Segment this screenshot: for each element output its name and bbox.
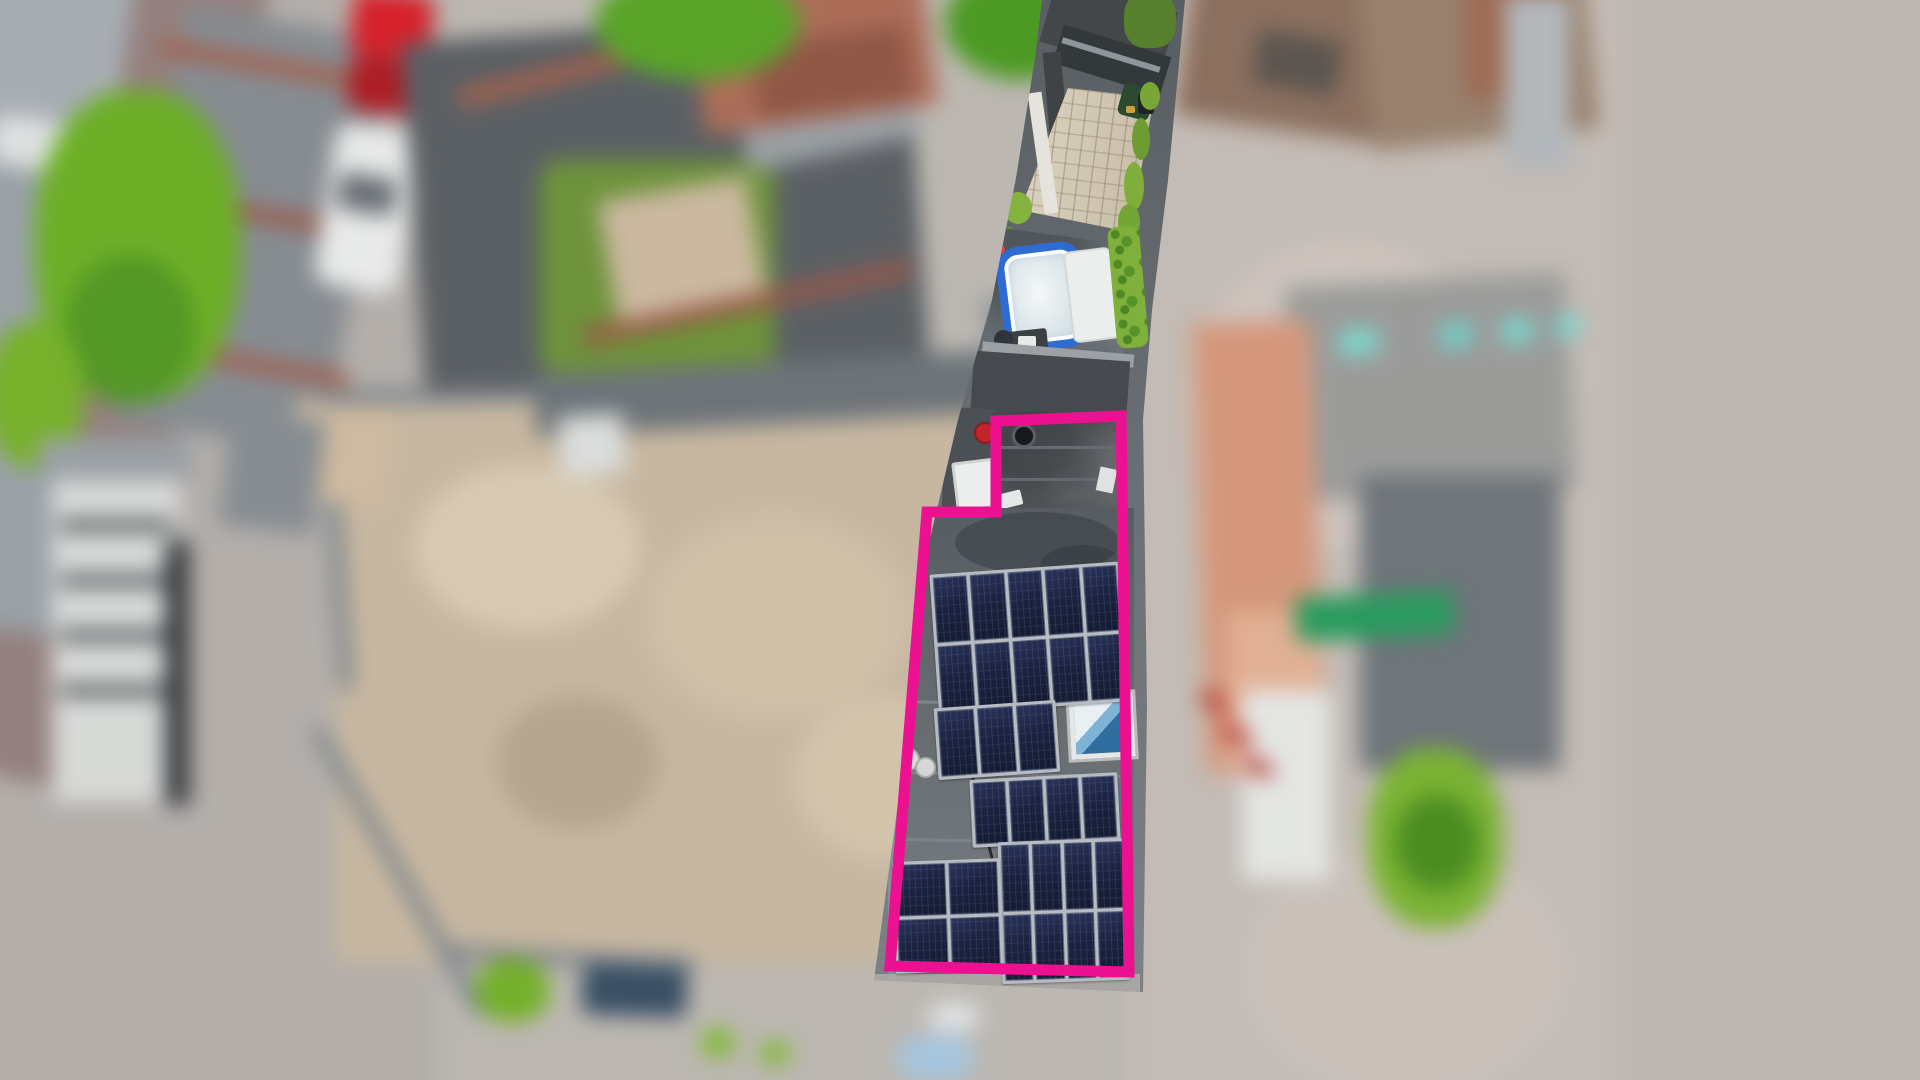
solar-panel <box>976 706 1017 774</box>
solar-panel <box>1032 843 1063 910</box>
solar-panel <box>937 644 976 712</box>
solar-panel <box>950 916 1001 969</box>
solar-panel <box>937 709 978 777</box>
wb-dark-edge <box>165 540 189 805</box>
solar-array-lower-left <box>892 858 1004 974</box>
blue-blob-bottom <box>898 1036 973 1080</box>
wb-window-band-1 <box>60 520 172 531</box>
aerial-photo <box>0 0 1920 1080</box>
terrace-plants-3 <box>1124 162 1144 210</box>
solar-panel <box>1045 777 1081 841</box>
solar-panel <box>1082 565 1121 633</box>
solar-array-mid-left <box>934 700 1061 780</box>
skylight-cyan-1 <box>1339 329 1378 355</box>
wb-window-band-4 <box>60 685 172 696</box>
solar-panel <box>970 573 1009 641</box>
solar-panel <box>1087 633 1126 701</box>
solar-panel <box>1094 841 1125 908</box>
tree-left-dark <box>65 255 195 405</box>
balcony-white <box>1242 690 1330 880</box>
vent-white-2 <box>915 757 936 778</box>
solar-panel <box>933 575 972 643</box>
sandy-dark-1 <box>495 695 660 830</box>
solar-panel <box>1063 842 1094 909</box>
white-blob-bottom <box>928 1002 980 1032</box>
solar-panel <box>1003 914 1034 981</box>
solar-array-upper-bank <box>929 562 1128 715</box>
building-right-roof <box>1285 273 1576 502</box>
solar-panel <box>1097 910 1128 977</box>
solar-panel <box>1007 570 1046 638</box>
shed-white <box>558 413 626 477</box>
strip-top-green <box>1124 0 1176 48</box>
solar-panel <box>1049 636 1088 704</box>
wb-window-band-2 <box>60 575 172 586</box>
solar-panel <box>948 861 999 914</box>
sandy-light-2 <box>645 515 910 720</box>
hatch-white <box>951 458 1001 513</box>
terrace-item-yellow <box>1126 106 1135 113</box>
notch-seam-1 <box>996 446 1120 449</box>
skylight-cyan-4 <box>1555 315 1580 336</box>
roof-gray-far-right <box>1505 0 1570 170</box>
solar-panel <box>975 641 1014 709</box>
solar-panel <box>895 863 946 916</box>
gray-block-left-of-lot <box>218 410 326 536</box>
solar-panel <box>1081 775 1117 839</box>
white-building-roofline <box>38 438 193 480</box>
solar-panel <box>1034 913 1065 980</box>
bush-bottom-center-1 <box>700 1028 736 1058</box>
solar-panel <box>1009 779 1045 843</box>
solar-panel <box>1001 844 1032 911</box>
sandy-light-1 <box>415 465 640 630</box>
solar-panel <box>972 781 1008 845</box>
wb-window-band-3 <box>60 630 172 641</box>
skylight-cyan-3 <box>1501 319 1532 343</box>
bush-bottom-left <box>475 958 550 1023</box>
tree-bottom-right-dark <box>1395 795 1480 890</box>
vent-black <box>1012 424 1036 448</box>
solar-panel <box>897 918 948 971</box>
terrace-plants-2 <box>1132 118 1150 160</box>
solar-panel <box>1044 567 1083 635</box>
solar-array-lower-right <box>998 838 1131 984</box>
skylight-cyan-2 <box>1439 323 1472 347</box>
solar-panel <box>1016 703 1057 771</box>
terrace-plants-1 <box>1140 82 1160 110</box>
solar-panel <box>1066 911 1097 978</box>
solar-panel <box>1012 638 1051 706</box>
solar-array-mid-row <box>969 772 1120 848</box>
bush-bottom-center-2 <box>760 1040 790 1066</box>
car-dark-bottom <box>581 964 688 1018</box>
vent-red <box>974 422 996 444</box>
awning-green <box>1295 590 1455 642</box>
